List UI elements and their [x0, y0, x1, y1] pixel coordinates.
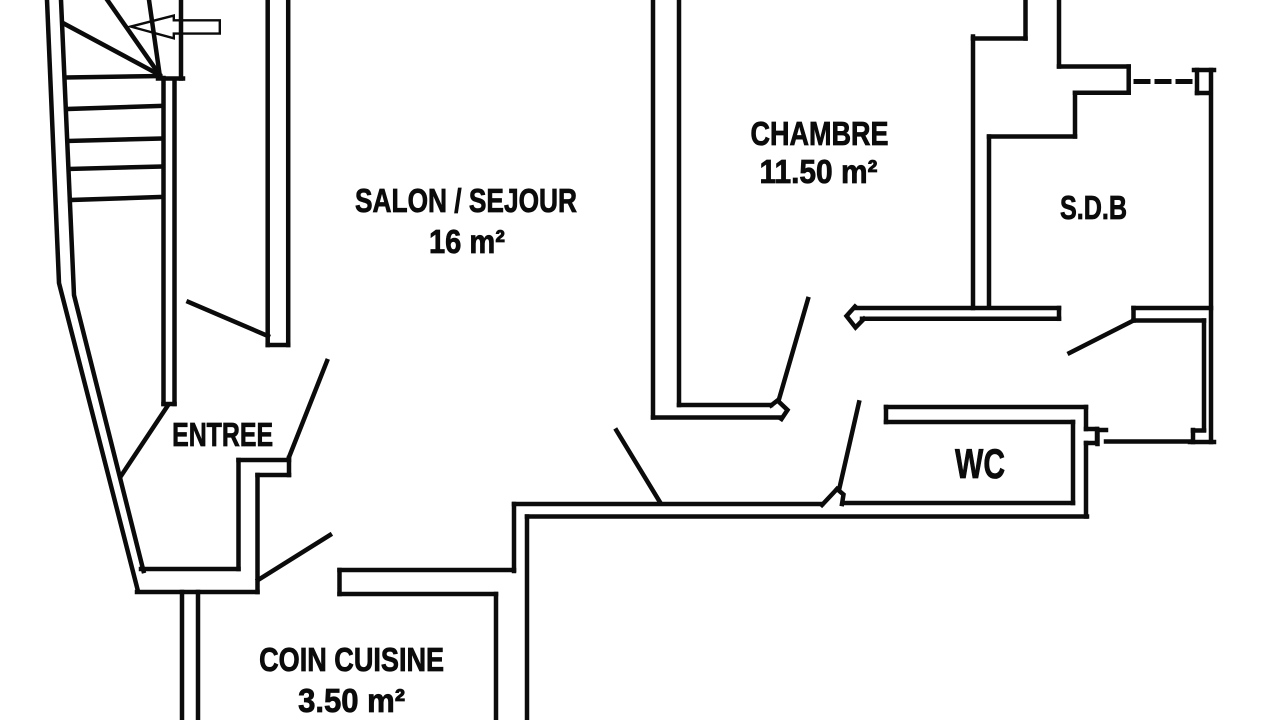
- svg-text:CHAMBRE: CHAMBRE: [751, 115, 889, 152]
- svg-text:WC: WC: [955, 440, 1005, 487]
- svg-text:ENTREE: ENTREE: [172, 416, 273, 453]
- svg-text:3.50 m²: 3.50 m²: [298, 682, 405, 719]
- svg-text:SALON / SEJOUR: SALON / SEJOUR: [355, 182, 577, 219]
- svg-text:S.D.B: S.D.B: [1060, 189, 1127, 226]
- svg-text:11.50 m²: 11.50 m²: [760, 153, 878, 190]
- svg-text:COIN CUISINE: COIN CUISINE: [259, 641, 444, 678]
- svg-text:16 m²: 16 m²: [429, 223, 505, 260]
